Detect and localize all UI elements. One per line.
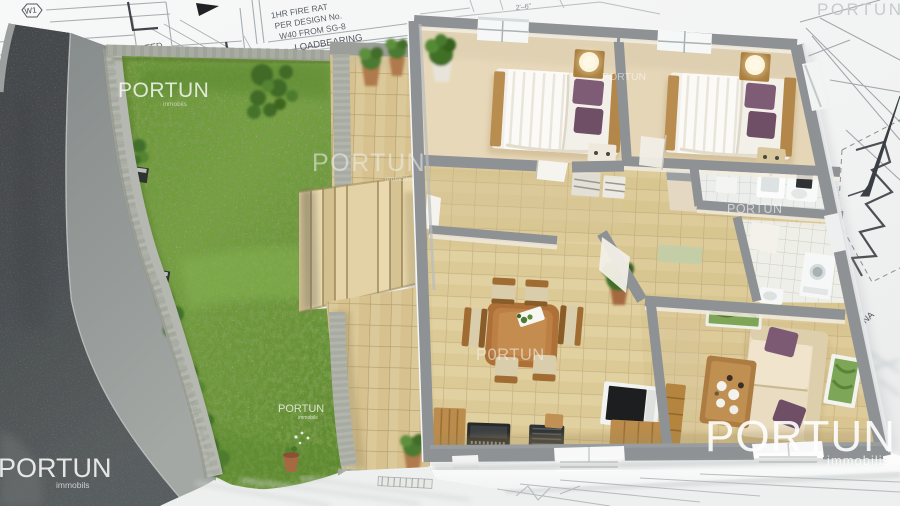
- svg-text:inmobils: inmobils: [163, 101, 188, 108]
- svg-text:PORTUN: PORTUN: [118, 79, 209, 102]
- svg-text:immobils: immobils: [298, 415, 318, 421]
- svg-text:W1: W1: [24, 5, 38, 16]
- svg-text:inmobilis: inmobilis: [385, 176, 413, 183]
- svg-text:PORTUN: PORTUN: [817, 0, 900, 19]
- svg-text:P0RTUN: P0RTUN: [476, 346, 545, 364]
- svg-text:PORTUN: PORTUN: [727, 202, 783, 216]
- svg-text:PORTUN: PORTUN: [278, 403, 324, 415]
- svg-text:immobilis: immobilis: [827, 453, 890, 468]
- svg-text:PORTUN: PORTUN: [0, 453, 112, 483]
- svg-text:immobils: immobils: [56, 480, 90, 490]
- svg-text:PORTUN: PORTUN: [602, 71, 646, 83]
- svg-text:PORTUN: PORTUN: [312, 149, 426, 177]
